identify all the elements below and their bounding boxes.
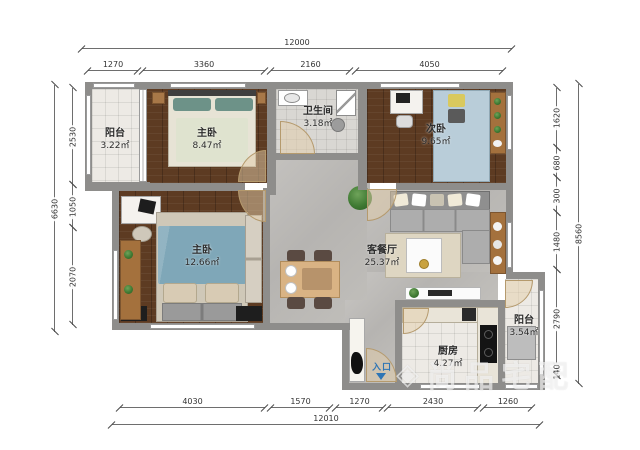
dim-left-seg: 2530 [72,88,73,185]
sink-icon [284,93,300,103]
bed-pillow [448,94,465,107]
room-label-second-bedroom: 次卧 9.65㎡ [404,124,468,148]
wall-second-bottom [396,183,506,190]
sofa-pillow [411,193,426,206]
sofa-pillow [430,194,444,206]
dim-value: 12010 [311,414,340,423]
table-runner [302,268,332,290]
floor-plan: 阳台 3.22㎡ 主卧 8.47㎡ 卫生间 3.18㎡ 次卧 9.65㎡ 主卧 … [0,0,640,450]
window-balcony-top [93,83,135,88]
window-second-right [507,95,512,150]
dim-value: 1480 [553,229,562,253]
dim-value: 1260 [496,397,520,406]
sofa-pillow [465,193,481,207]
dim-value: 1620 [553,106,562,130]
window-living-right [507,222,512,268]
bed-pillow [215,98,253,111]
dim-value: 140 [553,362,562,381]
room-area: 12.66㎡ [170,258,234,269]
entrance-arrow-icon [376,373,386,380]
room-label-master-bottom: 主卧 12.66㎡ [170,245,234,269]
dim-value: 4030 [180,397,204,406]
window-second-top [380,83,460,88]
plant-icon [124,285,133,294]
dining-chair [287,297,305,309]
kitchen-appliance [462,308,476,321]
nightstand [152,92,165,104]
room-label-bathroom: 卫生间 3.18㎡ [286,106,350,130]
room-area: 3.54㎡ [492,328,556,339]
dim-bottom-seg: 1570 [271,407,330,408]
decor-plate [493,140,502,147]
dim-value: 1270 [347,397,371,406]
plant-icon [409,288,419,298]
wall-kitchen-top [395,300,505,307]
dim-value: 6630 [51,196,60,220]
nightstand [257,92,266,104]
dining-chair [314,297,332,309]
dim-value: 1270 [101,60,125,69]
dim-left-seg: 1050 [72,185,73,228]
dim-top-seg: 3360 [143,70,265,71]
dim-bottom-total: 12010 [112,424,540,425]
bed-pillow [205,283,239,303]
plant-icon [494,98,501,105]
dim-bottom-seg: 2430 [388,407,478,408]
window-master-top [170,83,246,88]
burner-icon [484,348,493,357]
dim-value: 2070 [69,264,78,288]
room-label-balcony-bottom: 阳台 3.54㎡ [492,315,556,339]
sofa-pillow [447,193,462,206]
dim-top-seg: 4050 [356,70,503,71]
dim-value: 2160 [298,60,322,69]
window-master2-bottom [150,324,255,329]
room-area: 3.18㎡ [286,119,350,130]
dim-top-seg: 1270 [88,70,138,71]
dim-right-seg: 680 [556,148,557,178]
dim-right-seg: 1620 [556,88,557,148]
dim-bottom-seg: 4030 [120,407,265,408]
dim-left-total: 6630 [54,85,55,332]
room-area: 9.65㎡ [404,137,468,148]
dim-value: 4050 [417,60,441,69]
decor-tray [428,290,452,296]
room-name: 卫生间 [303,106,333,117]
plant-icon [124,250,133,259]
dim-value: 12000 [282,38,311,47]
plate-icon [285,265,297,277]
entrance-label: 入口 [372,360,392,373]
bed-bench [162,303,242,321]
room-label-balcony-top: 阳台 3.22㎡ [83,128,147,152]
bed-pillow [448,109,465,123]
wall-bath-bottom [276,153,358,160]
dim-bottom-seg: 1270 [336,407,383,408]
window-master2-left [113,250,118,320]
room-area: 3.22㎡ [83,141,147,152]
wardrobe [245,215,262,303]
sofa-seat [390,209,490,232]
dim-value: 680 [553,153,562,172]
dim-value: 1570 [288,397,312,406]
wall-entry-left [342,323,349,390]
bed-pillow [173,98,211,111]
dim-value: 3360 [192,60,216,69]
window-balcony2-bottom [505,384,538,389]
dim-left-seg: 2070 [72,228,73,325]
room-area: 8.47㎡ [175,141,239,152]
plant-icon [494,126,501,133]
dim-top-total: 12000 [82,48,512,49]
decor-vase [493,240,502,249]
dim-value: 2790 [553,306,562,330]
dim-value: 2530 [69,124,78,148]
nightstand [236,306,262,321]
dim-value: 2430 [421,397,445,406]
room-label-living-dining: 客餐厅 25.37㎡ [350,245,414,269]
laptop-icon [396,93,410,103]
room-name: 主卧 [197,128,217,139]
decor-bowl [419,259,429,269]
wall-master-bath [267,82,276,195]
dim-top-seg: 2160 [271,70,350,71]
room-name: 主卧 [192,245,212,256]
room-label-master-top: 主卧 8.47㎡ [175,128,239,152]
wall-bath-second [358,82,367,190]
room-area: 4.27㎡ [416,359,480,370]
dim-value: 300 [553,186,562,205]
dim-right-total: 8560 [578,84,579,384]
dim-value: 1050 [69,194,78,218]
bed-headboard [168,90,256,96]
dim-bottom-seg: 1260 [484,407,532,408]
window-kitchen-bottom [420,384,480,389]
room-name: 厨房 [438,346,458,357]
wall-bed-top-bottom [119,183,245,191]
decor-vase [493,222,502,231]
dim-right-seg: 300 [556,178,557,213]
plant-icon [494,112,501,119]
decor-item [351,352,363,374]
room-name: 阳台 [105,128,125,139]
sofa-chaise [462,230,490,264]
room-name: 客餐厅 [367,245,397,256]
room-name: 次卧 [426,124,446,135]
dim-value: 8560 [575,222,584,246]
dim-right-seg: 140 [556,367,557,376]
dim-right-seg: 2790 [556,270,557,367]
decor-vase [493,256,502,265]
dim-right-seg: 1480 [556,213,557,270]
bed-pillow [163,283,197,303]
room-label-kitchen: 厨房 4.27㎡ [416,346,480,370]
room-area: 25.37㎡ [350,258,414,269]
room-name: 阳台 [514,315,534,326]
plate-icon [285,282,297,294]
